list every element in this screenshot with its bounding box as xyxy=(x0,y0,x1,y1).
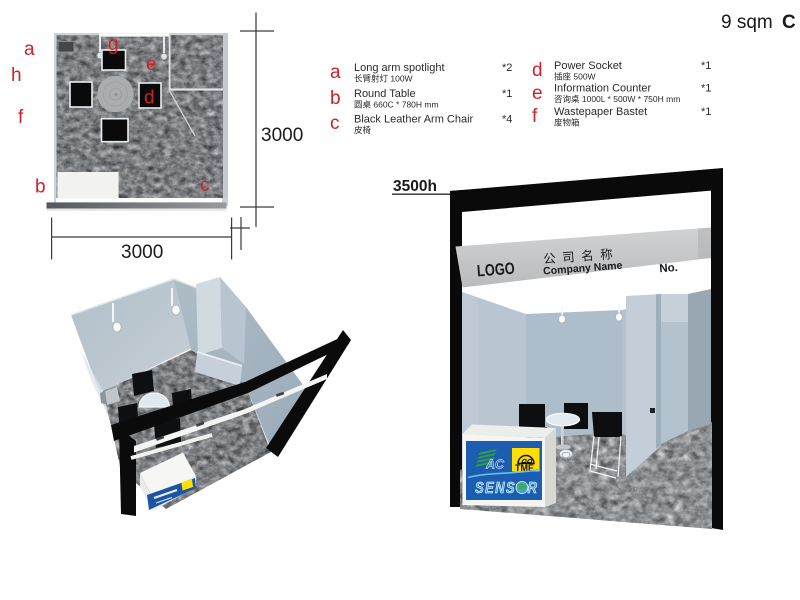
svg-text:Wastepaper Bastet: Wastepaper Bastet xyxy=(554,106,647,118)
svg-text:No.: No. xyxy=(659,262,678,275)
svg-text:AC: AC xyxy=(485,458,505,472)
svg-text:废物箱: 废物箱 xyxy=(554,118,580,128)
svg-text:g: g xyxy=(108,34,119,55)
svg-text:*1: *1 xyxy=(701,106,711,118)
svg-text:*2: *2 xyxy=(502,62,512,74)
svg-text:插座 500W: 插座 500W xyxy=(554,72,596,82)
svg-text:咨询桌 1000L * 500W * 750H mm: 咨询桌 1000L * 500W * 750H mm xyxy=(554,94,680,104)
svg-text:Information Counter: Information Counter xyxy=(554,83,652,95)
svg-text:b: b xyxy=(330,88,341,109)
svg-text:c: c xyxy=(200,175,210,196)
svg-text:C: C xyxy=(782,12,796,33)
svg-text:长臂射灯 100W: 长臂射灯 100W xyxy=(354,74,413,84)
svg-text:Black Leather Arm Chair: Black Leather Arm Chair xyxy=(354,114,474,126)
svg-text:皮椅: 皮椅 xyxy=(354,125,372,135)
svg-text:a: a xyxy=(24,39,35,60)
svg-text:d: d xyxy=(144,88,155,109)
svg-text:f: f xyxy=(18,107,24,128)
svg-text:SENSOR: SENSOR xyxy=(475,480,538,497)
svg-text:9 sqm: 9 sqm xyxy=(721,12,773,33)
svg-text:Power Socket: Power Socket xyxy=(554,60,622,72)
svg-text:*1: *1 xyxy=(701,60,711,72)
svg-text:h: h xyxy=(11,65,22,86)
svg-text:a: a xyxy=(330,62,341,83)
svg-text:*1: *1 xyxy=(502,88,512,100)
svg-text:*1: *1 xyxy=(701,83,711,95)
svg-text:*4: *4 xyxy=(502,114,512,126)
svg-text:e: e xyxy=(146,54,157,75)
svg-text:c: c xyxy=(330,113,340,134)
svg-text:Round Table: Round Table xyxy=(354,88,416,100)
svg-text:Long arm spotlight: Long arm spotlight xyxy=(354,62,445,74)
svg-text:圆桌 660C * 780H mm: 圆桌 660C * 780H mm xyxy=(354,100,439,110)
svg-text:b: b xyxy=(35,177,46,198)
svg-text:3000: 3000 xyxy=(261,125,303,146)
svg-text:e: e xyxy=(532,83,543,104)
svg-text:3500h: 3500h xyxy=(393,178,437,195)
svg-text:3000: 3000 xyxy=(121,242,163,263)
svg-text:LOGO: LOGO xyxy=(476,260,515,281)
svg-text:d: d xyxy=(532,60,543,81)
svg-text:f: f xyxy=(532,106,538,127)
